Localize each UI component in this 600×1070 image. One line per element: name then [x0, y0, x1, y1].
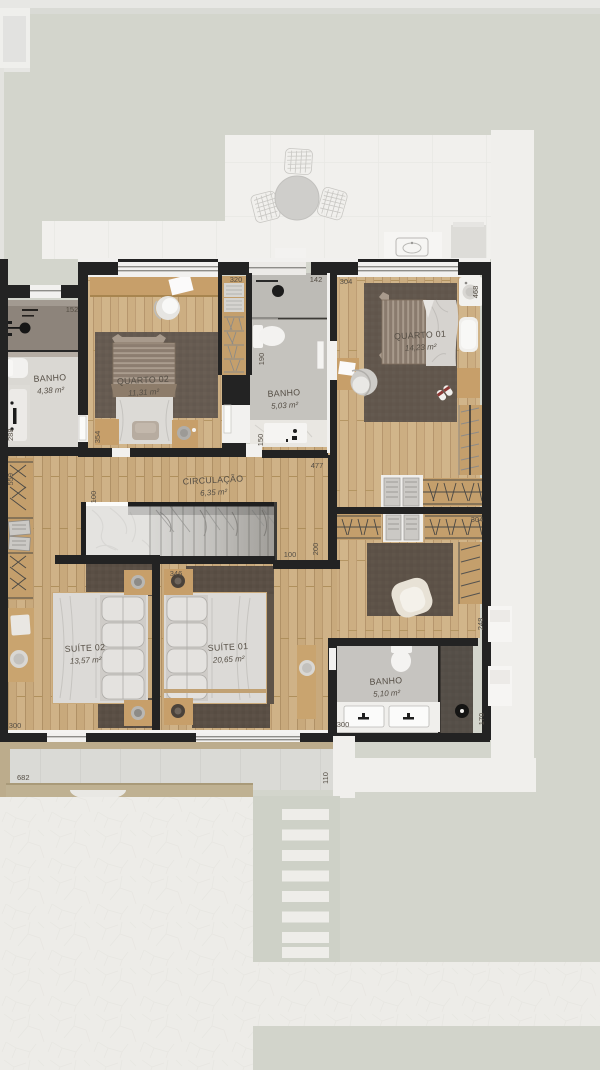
svg-text:304: 304: [471, 515, 484, 524]
svg-text:200: 200: [311, 543, 320, 556]
svg-text:110: 110: [321, 772, 330, 784]
svg-text:5,10 m²: 5,10 m²: [373, 688, 401, 698]
svg-text:248: 248: [476, 618, 485, 631]
svg-text:170: 170: [477, 713, 486, 726]
svg-text:5,03 m²: 5,03 m²: [271, 400, 299, 410]
svg-text:20,65 m²: 20,65 m²: [212, 654, 245, 665]
svg-text:477: 477: [311, 461, 324, 470]
svg-text:346: 346: [170, 569, 183, 578]
svg-text:13,57 m²: 13,57 m²: [70, 655, 102, 666]
svg-text:682: 682: [17, 773, 30, 782]
svg-text:100: 100: [89, 491, 98, 504]
svg-text:142: 142: [310, 275, 323, 284]
svg-text:300: 300: [9, 721, 22, 730]
svg-text:100: 100: [284, 550, 297, 559]
svg-text:SUÍTE 01: SUÍTE 01: [207, 641, 248, 653]
svg-text:SUÍTE 02: SUÍTE 02: [64, 642, 105, 654]
svg-text:300: 300: [337, 720, 350, 729]
svg-text:11,31 m²: 11,31 m²: [128, 387, 160, 398]
svg-text:14,23 m²: 14,23 m²: [405, 342, 437, 353]
svg-text:6,35 m²: 6,35 m²: [200, 487, 228, 497]
svg-text:288: 288: [6, 428, 15, 441]
svg-text:354: 354: [93, 431, 102, 444]
svg-text:304: 304: [340, 277, 353, 286]
svg-text:150: 150: [256, 434, 265, 447]
svg-text:4,38 m²: 4,38 m²: [37, 385, 65, 395]
svg-text:468: 468: [471, 286, 480, 299]
svg-text:559: 559: [6, 473, 15, 486]
svg-text:190: 190: [257, 353, 266, 366]
svg-text:BANHO: BANHO: [33, 372, 66, 384]
svg-text:152: 152: [66, 305, 79, 314]
svg-text:320: 320: [230, 275, 243, 284]
svg-text:BANHO: BANHO: [267, 387, 300, 399]
svg-text:BANHO: BANHO: [369, 675, 402, 687]
